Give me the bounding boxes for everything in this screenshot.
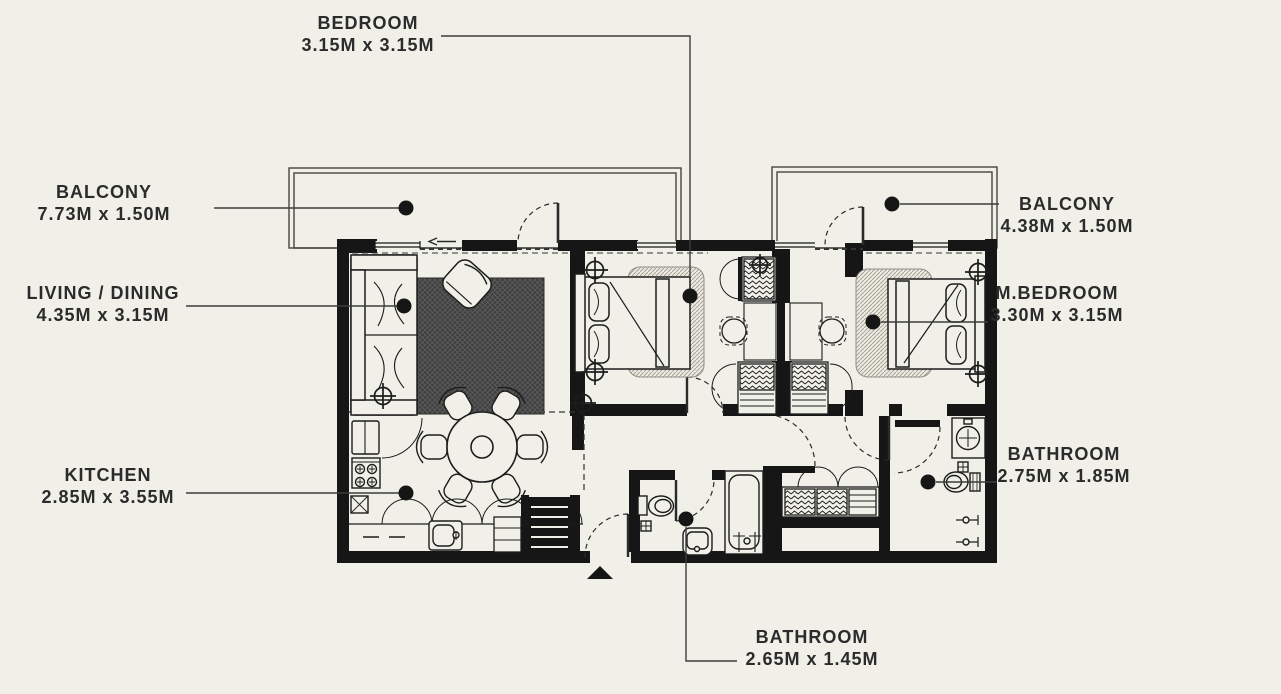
- floor-drain: [958, 462, 968, 472]
- leader-dot: [399, 201, 414, 216]
- master-bedroom-bed: [888, 276, 985, 372]
- room-dimensions: 3.15M x 3.15M: [283, 34, 453, 56]
- label-balcony-right: BALCONY 4.38M x 1.50M: [991, 193, 1143, 237]
- label-bathroom-bottom: BATHROOM 2.65M x 1.45M: [733, 626, 891, 670]
- laundry-closet: [782, 467, 879, 517]
- fridge: [352, 421, 379, 454]
- leader-balcony-left: [214, 201, 414, 216]
- toilet-bottom: [638, 496, 674, 516]
- entry-marker: [587, 566, 613, 579]
- leader-dot: [679, 512, 694, 527]
- room-dimensions: 2.85M x 3.55M: [32, 486, 184, 508]
- room-dimensions: 4.35M x 3.15M: [20, 304, 186, 326]
- room-dimensions: 4.38M x 1.50M: [991, 215, 1143, 237]
- room-dimensions: 7.73M x 1.50M: [28, 203, 180, 225]
- leader-dot: [866, 315, 881, 330]
- kitchen-sink: [429, 521, 462, 550]
- floor-plan-canvas: [0, 0, 1281, 694]
- entry-closet: [529, 497, 570, 555]
- sofa: [351, 255, 417, 415]
- label-balcony-left: BALCONY 7.73M x 1.50M: [28, 181, 180, 225]
- label-kitchen: KITCHEN 2.85M x 3.55M: [32, 464, 184, 508]
- bathtub: [725, 471, 763, 554]
- room-dimensions: 2.75M x 1.85M: [985, 465, 1143, 487]
- bathroom-sink: [952, 418, 985, 458]
- entry-cabinet: [494, 517, 521, 552]
- leader-dot: [885, 197, 900, 212]
- label-bedroom: BEDROOM 3.15M x 3.15M: [283, 12, 453, 56]
- room-title: M.BEDROOM: [978, 282, 1136, 304]
- balcony-right-rail: [772, 167, 997, 248]
- leader-dot: [397, 299, 412, 314]
- floor-plan-page: BEDROOM 3.15M x 3.15M BALCONY 7.73M x 1.…: [0, 0, 1281, 694]
- room-title: BEDROOM: [283, 12, 453, 34]
- wardrobe-bottom-right: [790, 362, 852, 414]
- shower-heads: [956, 515, 978, 547]
- label-living-dining: LIVING / DINING 4.35M x 3.15M: [20, 282, 186, 326]
- room-title: BATHROOM: [733, 626, 891, 648]
- label-master-bedroom: M.BEDROOM 3.30M x 3.15M: [978, 282, 1136, 326]
- room-title: BALCONY: [28, 181, 180, 203]
- pedestal-sink: [683, 528, 712, 555]
- chair-right: [819, 317, 846, 345]
- chair-left: [720, 317, 747, 345]
- wardrobe-bottom-left: [712, 362, 776, 414]
- stove: [352, 458, 380, 488]
- leader-bedroom: [441, 36, 698, 304]
- room-title: BALCONY: [991, 193, 1143, 215]
- room-title: LIVING / DINING: [20, 282, 186, 304]
- leader-balcony-right: [885, 197, 1000, 212]
- leader-dot: [683, 289, 698, 304]
- room-title: BATHROOM: [985, 443, 1143, 465]
- room-dimensions: 3.30M x 3.15M: [978, 304, 1136, 326]
- leader-dot: [399, 486, 414, 501]
- room-dimensions: 2.65M x 1.45M: [733, 648, 891, 670]
- label-bathroom-right: BATHROOM 2.75M x 1.85M: [985, 443, 1143, 487]
- bedroom-bed: [575, 274, 690, 372]
- room-title: KITCHEN: [32, 464, 184, 486]
- floor-drain-2: [641, 521, 651, 531]
- desk-left: [744, 303, 776, 360]
- desk-right: [790, 303, 822, 360]
- bathroom-bottom-fixtures: [638, 471, 763, 555]
- leader-dot: [921, 475, 936, 490]
- dishwasher: [351, 496, 368, 513]
